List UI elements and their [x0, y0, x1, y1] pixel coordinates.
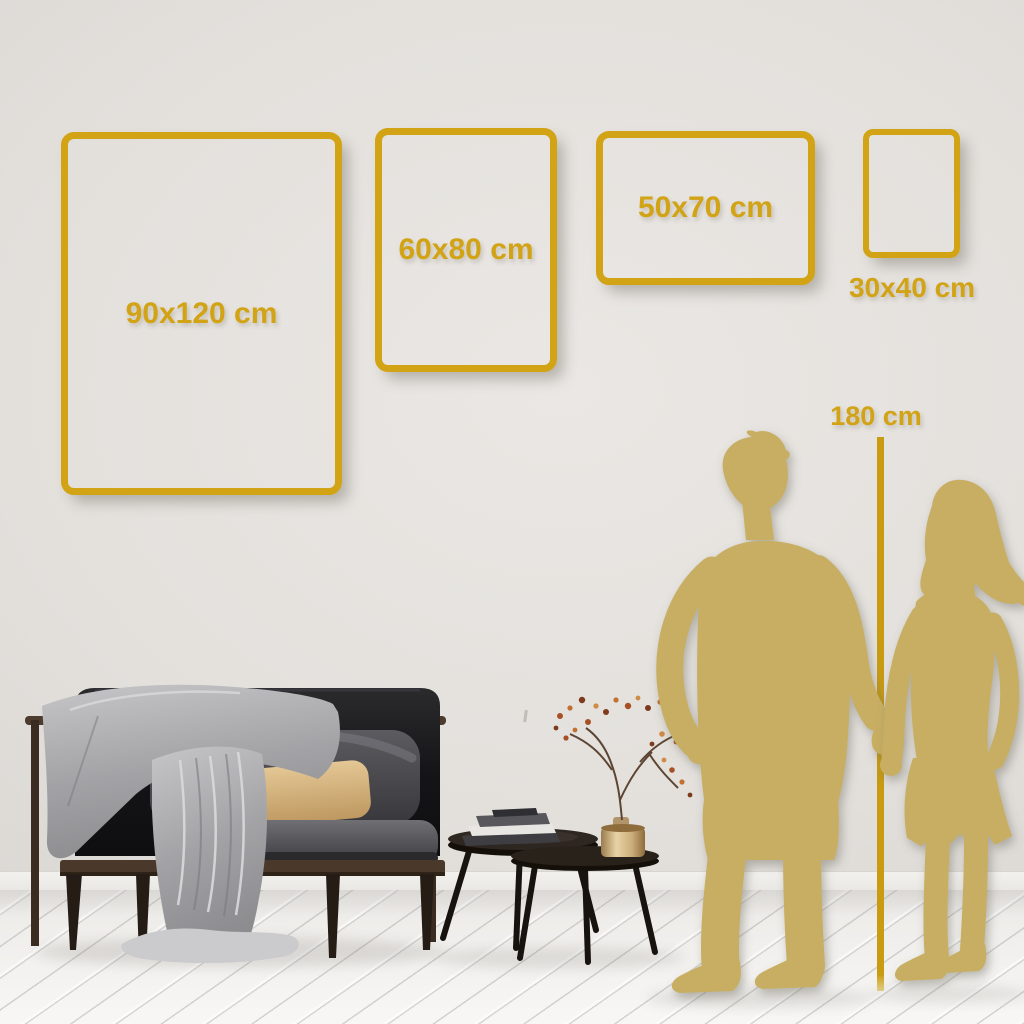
size-label-30x40: 30x40 cm	[837, 272, 987, 304]
height-ruler-line	[877, 437, 884, 991]
height-reference-label: 180 cm	[806, 401, 946, 432]
size-frame-90x120: 90x120 cm	[61, 132, 342, 495]
baseboard	[0, 871, 1024, 891]
poster-size-guide-scene: 90x120 cm 60x80 cm 50x70 cm 30x40 cm 180…	[0, 0, 1024, 1024]
size-label-50x70: 50x70 cm	[638, 191, 773, 225]
size-frame-50x70: 50x70 cm	[596, 131, 815, 285]
size-label-60x80: 60x80 cm	[398, 233, 533, 267]
size-frame-30x40	[863, 129, 960, 258]
wood-floor	[0, 890, 1024, 1024]
size-frame-60x80: 60x80 cm	[375, 128, 557, 372]
size-label-90x120: 90x120 cm	[126, 297, 278, 331]
